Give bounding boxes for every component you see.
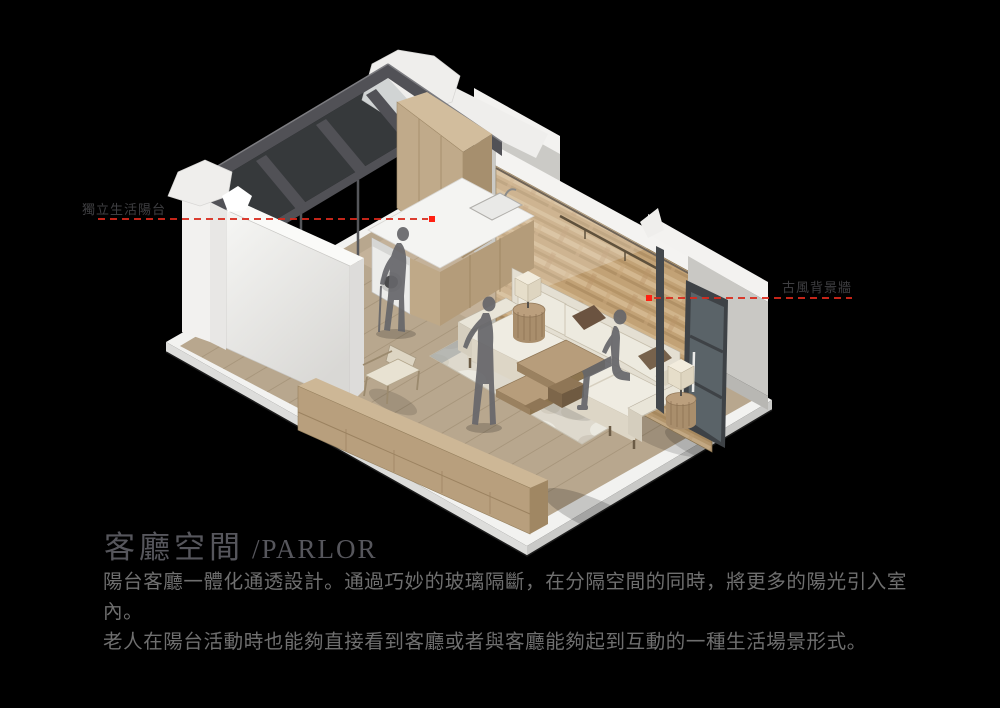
page-title-zh: 客廳空間 [104,530,244,565]
side-table-right [666,359,696,430]
leader-dot-left [429,216,435,222]
presentation-board: 獨立生活陽台 古風背景牆 客廳空間/PARLOR 陽台客廳一體化通透設計。通過巧… [0,0,1000,708]
leader-dot-right [646,295,652,301]
page-title: 客廳空間/PARLOR [104,522,378,567]
description: 陽台客廳一體化通透設計。通過巧妙的玻璃隔斷，在分隔空間的同時，將更多的陽光引入室… [103,568,933,658]
page-title-en: /PARLOR [252,534,378,564]
annotation-label-left: 獨立生活陽台 [82,202,166,217]
side-table-left [513,271,545,343]
description-line-2: 老人在陽台活動時也能夠直接看到客廳或者與客廳能夠起到互動的一種生活場景形式。 [103,628,933,658]
description-line-1: 陽台客廳一體化通透設計。通過巧妙的玻璃隔斷，在分隔空間的同時，將更多的陽光引入室… [103,568,933,628]
annotation-label-right: 古風背景牆 [782,280,852,295]
